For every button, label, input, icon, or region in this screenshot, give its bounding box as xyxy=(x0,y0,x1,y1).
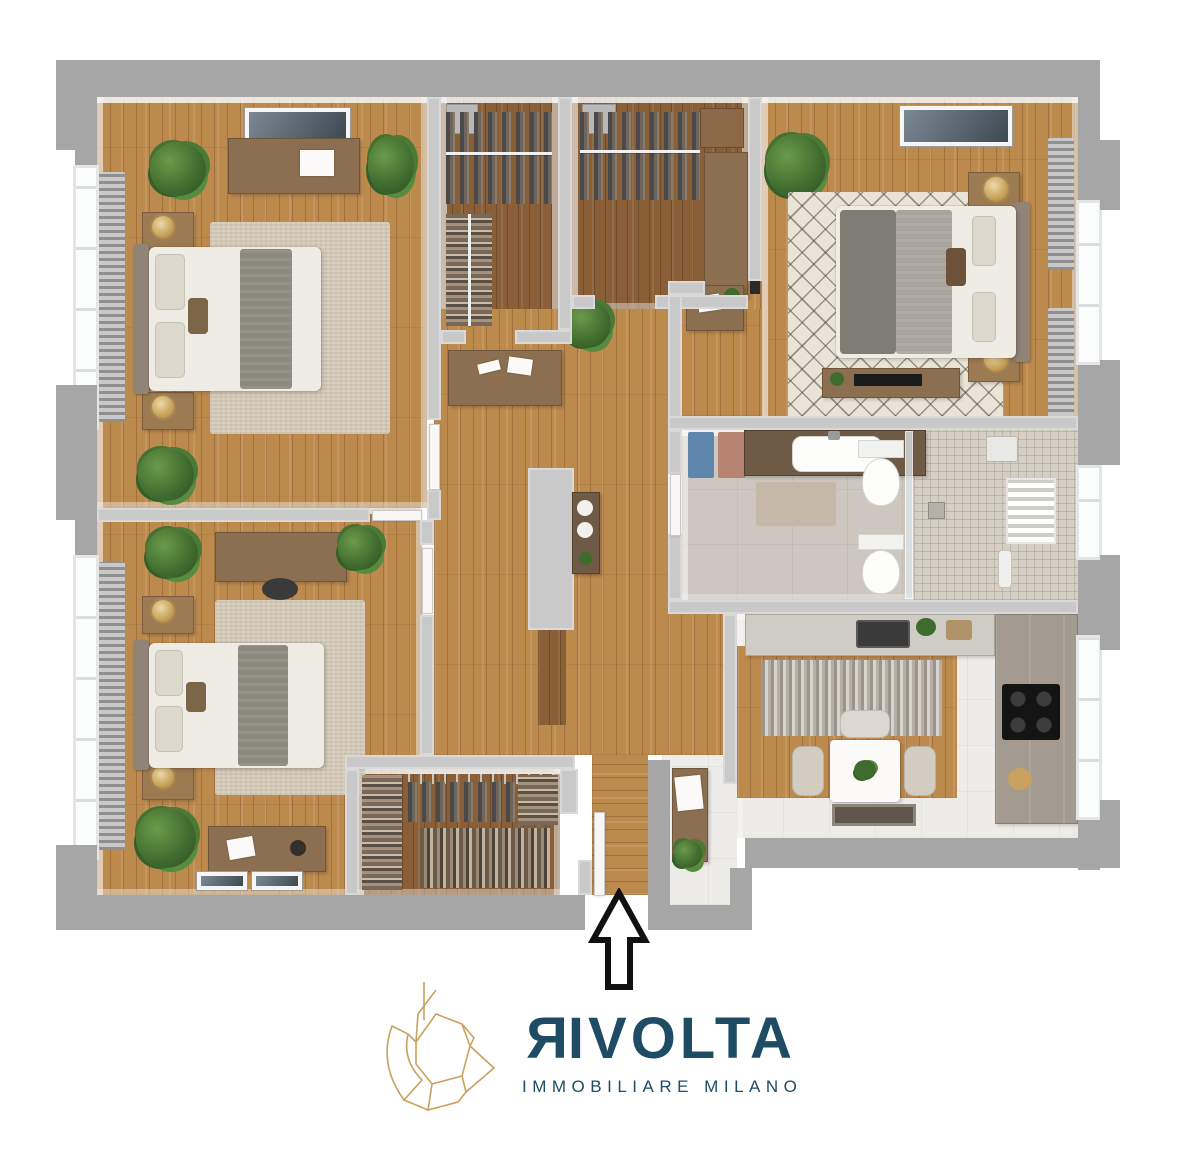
brand-logo-mark-icon xyxy=(378,980,496,1126)
window xyxy=(1076,465,1102,560)
door-leaf xyxy=(670,474,681,536)
wall xyxy=(668,281,705,295)
hanging-clothes xyxy=(580,112,700,200)
outer-wall-step xyxy=(730,868,752,930)
wall xyxy=(441,330,466,344)
towel-radiator xyxy=(1006,478,1056,544)
shelf-plate xyxy=(577,522,593,538)
toilet xyxy=(862,458,900,506)
wall-art xyxy=(900,106,1012,146)
dining-chair xyxy=(904,746,936,796)
wall xyxy=(427,97,441,420)
outer-wall-kitchen-bottom xyxy=(745,838,1100,868)
table-lamp xyxy=(984,177,1008,201)
wall xyxy=(515,330,572,344)
dresser xyxy=(228,138,360,194)
kitchen-sink xyxy=(856,620,910,648)
outer-wall-right xyxy=(1078,365,1100,465)
outer-wall-bottom xyxy=(75,895,585,930)
accent-pillow xyxy=(946,248,966,286)
wall xyxy=(420,615,434,755)
hall-post xyxy=(538,630,566,725)
shelf-plant xyxy=(579,552,592,565)
brand-logo: RIVOLTA IMMOBILIARE MILANO xyxy=(378,978,838,1128)
bed-headboard xyxy=(133,244,149,394)
radiator xyxy=(99,562,125,850)
bench xyxy=(208,826,326,872)
wall-pillar xyxy=(1100,555,1120,650)
wall-pillar xyxy=(1100,800,1120,868)
towel-blue xyxy=(688,432,714,478)
bidet-tank xyxy=(858,534,904,550)
wall xyxy=(668,430,682,474)
bed-blanket xyxy=(896,210,952,354)
dining-chair xyxy=(840,710,890,738)
potted-plant xyxy=(338,526,382,570)
brand-wordmark-rest: IVOLTA xyxy=(568,1006,796,1071)
wall-pillar xyxy=(1100,140,1120,210)
wall-art xyxy=(245,108,350,142)
hall-console xyxy=(448,350,562,406)
radiator xyxy=(1048,308,1074,426)
shower-glass-panel xyxy=(906,432,912,598)
entry-plant xyxy=(674,840,702,868)
wall xyxy=(560,769,578,814)
wall xyxy=(345,769,359,895)
table-lamp xyxy=(152,396,174,418)
storage-box xyxy=(700,108,744,148)
dresser-tray xyxy=(300,150,334,176)
brand-wordmark-initial: R xyxy=(522,1010,568,1068)
potted-plant xyxy=(766,134,826,198)
window xyxy=(73,555,99,860)
bed-headboard xyxy=(1014,202,1030,362)
cooktop xyxy=(1002,684,1060,740)
table-lamp xyxy=(152,766,174,788)
bed-pillow xyxy=(155,650,183,696)
counter-plant xyxy=(916,618,936,636)
bed-pillow xyxy=(155,322,185,378)
accent-pillow xyxy=(188,298,208,334)
gold-pot xyxy=(1008,768,1032,790)
entry-mirror xyxy=(674,775,703,812)
console-card xyxy=(507,356,533,375)
bed-blanket xyxy=(238,645,288,766)
floor-plan: RIVOLTA IMMOBILIARE MILANO xyxy=(0,0,1186,1149)
radiator xyxy=(99,172,125,422)
hanging-clothes xyxy=(446,112,552,204)
wall xyxy=(668,534,682,600)
closet-rail xyxy=(580,150,700,153)
closet-rail xyxy=(446,152,552,155)
closet-wardrobe xyxy=(704,152,748,298)
wall-pillar xyxy=(1100,360,1120,465)
wall xyxy=(427,490,441,520)
bed-throw xyxy=(840,210,896,354)
wall xyxy=(723,614,737,784)
desk-chair xyxy=(262,578,298,600)
bath-mat xyxy=(756,482,836,526)
table-lamp xyxy=(152,216,174,238)
bed-pillow xyxy=(972,216,996,266)
stacked-books xyxy=(420,828,550,888)
window xyxy=(1076,200,1102,365)
entry-arrow-icon xyxy=(588,888,650,992)
potted-plant xyxy=(150,142,206,196)
wall-pillar xyxy=(56,385,97,520)
table-plant xyxy=(854,760,876,780)
brand-wordmark: RIVOLTA xyxy=(522,1010,802,1068)
folded-clothes xyxy=(362,775,402,890)
hand-sprayer xyxy=(998,550,1012,588)
window xyxy=(1076,635,1102,820)
shelf-plate xyxy=(577,500,593,516)
wall xyxy=(97,508,370,522)
bed-pillow xyxy=(972,292,996,342)
folded-clothes xyxy=(518,775,558,825)
shower-control xyxy=(928,502,945,519)
wall xyxy=(668,600,1078,614)
potted-plant xyxy=(368,136,414,194)
brand-tagline: IMMOBILIARE MILANO xyxy=(522,1077,802,1097)
accent-pillow xyxy=(186,682,206,712)
vase xyxy=(290,840,306,856)
potted-plant xyxy=(136,808,196,868)
cutting-board xyxy=(946,620,972,640)
potted-plant xyxy=(138,448,194,501)
wall xyxy=(668,295,682,430)
door-leaf xyxy=(429,424,440,490)
brand-text: RIVOLTA IMMOBILIARE MILANO xyxy=(522,1010,802,1097)
radiator xyxy=(1048,138,1074,270)
bed-blanket xyxy=(240,249,292,389)
dining-chair xyxy=(792,746,824,796)
wall xyxy=(668,416,1078,430)
towel-pink xyxy=(718,432,746,478)
wall xyxy=(572,295,595,309)
doormat xyxy=(832,804,916,826)
front-door-leaf xyxy=(594,812,605,896)
hall-wall-stub xyxy=(528,468,574,630)
bed-pillow xyxy=(155,706,183,752)
wall xyxy=(345,755,575,769)
outer-wall-top xyxy=(75,60,1100,97)
door-leaf xyxy=(422,548,433,614)
tv xyxy=(854,374,922,386)
potted-plant xyxy=(146,528,198,578)
wall xyxy=(558,97,572,330)
wall-pillar xyxy=(56,60,97,150)
console-plant xyxy=(830,372,844,386)
closet-rail xyxy=(468,214,471,326)
wall xyxy=(420,520,434,545)
desk xyxy=(215,532,347,582)
bidet xyxy=(862,550,900,594)
bed-pillow xyxy=(155,254,185,310)
outer-wall-right xyxy=(1078,60,1100,200)
wall xyxy=(748,97,762,281)
bed-headboard xyxy=(133,640,149,770)
hanging-clothes xyxy=(408,782,526,822)
shower-head xyxy=(986,436,1018,462)
outer-wall-right xyxy=(1078,560,1100,635)
floor-picture xyxy=(197,872,247,890)
table-lamp xyxy=(152,600,174,622)
toilet-tank xyxy=(858,440,904,458)
door-leaf xyxy=(372,510,422,521)
floor-picture xyxy=(252,872,302,890)
faucet xyxy=(828,431,840,440)
